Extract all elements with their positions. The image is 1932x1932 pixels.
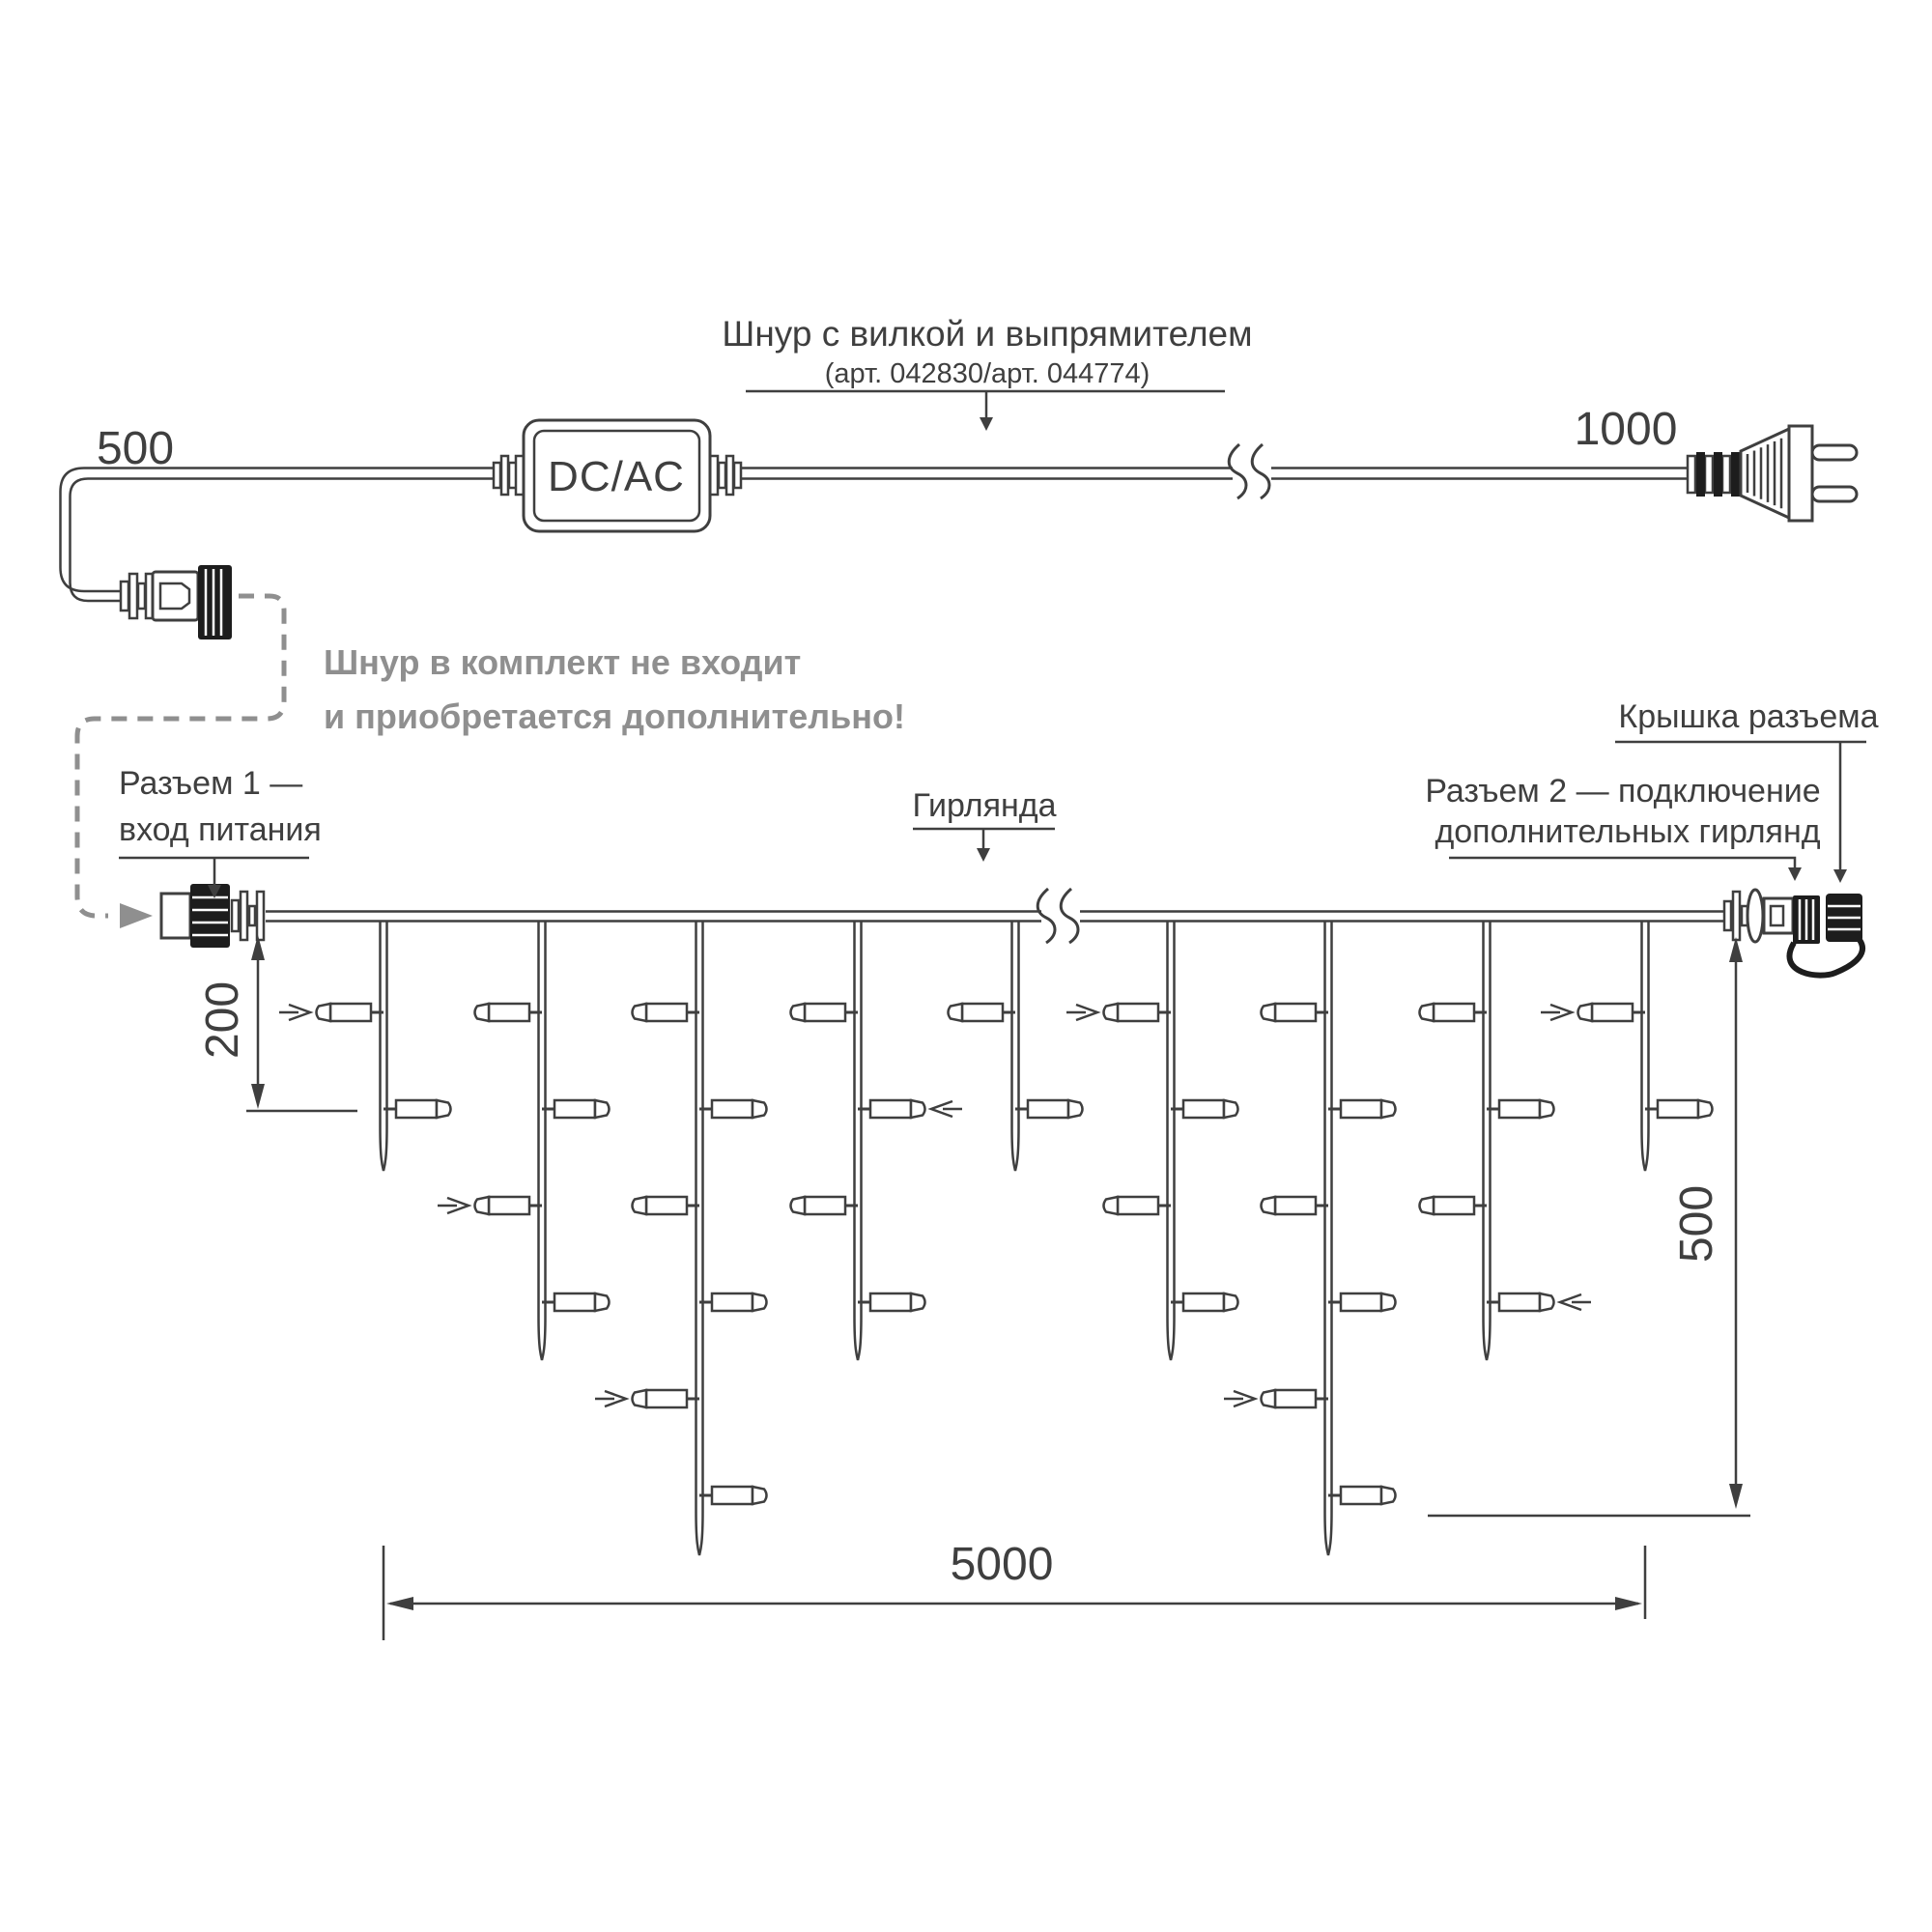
- bulb-cap: [753, 1487, 767, 1504]
- bulb-cap: [753, 1100, 767, 1118]
- connector2-ribs: [1724, 892, 1747, 940]
- bulb-cap: [1262, 1004, 1276, 1021]
- led-bulb: [1328, 1293, 1396, 1311]
- drop-wire: [1168, 921, 1175, 1360]
- power-cord-assembly: 500 1000 Шнур с вилкой и выпрямителем (а…: [61, 314, 1858, 639]
- note-line1: Шнур в комплект не входит: [324, 642, 801, 682]
- led-bulb: [1171, 1100, 1238, 1118]
- bulb-marker-arrow-icon: [1560, 1294, 1591, 1310]
- drop-wire: [1325, 921, 1332, 1555]
- bulb-body: [805, 1197, 845, 1214]
- led-bulb: [542, 1293, 610, 1311]
- bulb-body: [1341, 1293, 1381, 1311]
- bulb-cap: [911, 1293, 925, 1311]
- led-bulb: [791, 1197, 859, 1214]
- drop-wire: [696, 921, 703, 1555]
- bulb-cap: [791, 1004, 806, 1021]
- bulb-body: [1341, 1100, 1381, 1118]
- bulb-cap: [1068, 1100, 1083, 1118]
- bulb-body: [1275, 1390, 1316, 1407]
- bulb-marker-arrow-icon: [438, 1198, 469, 1213]
- led-bulb: [279, 1004, 384, 1021]
- cord-end-connector: [121, 565, 232, 639]
- cord-right-lines: [742, 469, 1689, 479]
- bulb-body: [1499, 1100, 1540, 1118]
- bulb-body: [1434, 1004, 1474, 1021]
- bulb-cap: [949, 1004, 963, 1021]
- bulb-body: [805, 1004, 845, 1021]
- garland-drop: [1224, 921, 1396, 1555]
- connector2-callout: Разъем 2 — подключение дополнительных ги…: [1425, 773, 1820, 881]
- bulb-cap: [1104, 1197, 1119, 1214]
- connector1-plug-body: [161, 894, 190, 938]
- dim5000-arrow-left-icon: [386, 1597, 413, 1610]
- plug-pin-bottom: [1812, 487, 1857, 501]
- bulb-body: [1275, 1197, 1316, 1214]
- led-bulb: [1420, 1004, 1488, 1021]
- led-bulb: [438, 1197, 542, 1214]
- bulb-marker-arrow-icon: [595, 1391, 626, 1406]
- connector2-label-line1: Разъем 2 — подключение: [1425, 773, 1820, 810]
- bulb-body: [870, 1293, 911, 1311]
- connector1-callout: Разъем 1 — вход питания: [119, 765, 322, 898]
- dashed-connection-path: [77, 596, 284, 916]
- cord-right-length-label: 1000: [1575, 404, 1678, 455]
- bulb-body: [712, 1487, 753, 1504]
- bulb-body: [712, 1293, 753, 1311]
- led-bulb: [1487, 1100, 1554, 1118]
- drop-wire: [1484, 921, 1491, 1360]
- bulb-cap: [633, 1390, 647, 1407]
- led-bulb: [1645, 1100, 1713, 1118]
- led-bulb: [475, 1004, 543, 1021]
- plug-strain-relief-dark: [1696, 452, 1740, 497]
- garland-callout: Гирлянда: [912, 787, 1056, 862]
- cap-arrow-icon: [1833, 869, 1847, 883]
- dim5000-value: 5000: [951, 1539, 1054, 1590]
- garland-drop: [595, 921, 767, 1555]
- drop-wire: [539, 921, 546, 1360]
- wire-break-icon: [1061, 889, 1078, 943]
- bulb-marker-arrow-icon: [1224, 1391, 1255, 1406]
- bulb-cap: [1420, 1004, 1435, 1021]
- drop-wire: [1642, 921, 1649, 1171]
- bulb-body: [396, 1100, 437, 1118]
- cord-subtitle: (арт. 042830/арт. 044774): [825, 358, 1151, 389]
- bulb-cap: [1540, 1100, 1554, 1118]
- led-bulb: [858, 1293, 925, 1311]
- cord-left-length-label: 500: [97, 423, 174, 474]
- connector2-label-line2: дополнительных гирлянд: [1435, 813, 1820, 850]
- bulb-cap: [1262, 1197, 1276, 1214]
- mains-plug: [1688, 426, 1857, 521]
- led-bulb: [1171, 1293, 1238, 1311]
- cord-break-icon: [1252, 444, 1269, 498]
- converter-right-strain-relief: [710, 456, 741, 495]
- led-bulb: [1262, 1197, 1329, 1214]
- dim500-value: 500: [1671, 1185, 1722, 1263]
- led-bulb: [1420, 1197, 1488, 1214]
- cord-title-arrow-icon: [980, 417, 993, 431]
- connector2-leader-line: [1449, 858, 1795, 867]
- led-bulb: [699, 1293, 767, 1311]
- garland-drop: [1066, 921, 1238, 1360]
- wire-break-icon: [1037, 889, 1055, 943]
- bulb-body: [1434, 1197, 1474, 1214]
- connector1-leader-line: [119, 858, 309, 885]
- led-bulb: [1541, 1004, 1645, 1021]
- bulb-cap: [595, 1100, 610, 1118]
- led-bulb: [1328, 1100, 1396, 1118]
- bulb-cap: [475, 1197, 490, 1214]
- bulb-body: [1118, 1004, 1158, 1021]
- connector2-loop-icon: [1747, 890, 1763, 942]
- converter-left-strain-relief: [494, 456, 524, 495]
- cord-connection-hint: Шнур в комплект не входит и приобретаетс…: [77, 596, 905, 928]
- bulb-body: [489, 1197, 529, 1214]
- plug-face-plate: [1789, 426, 1812, 521]
- bulb-body: [1592, 1004, 1633, 1021]
- bulb-cap: [1224, 1293, 1238, 1311]
- bulb-cap: [633, 1197, 647, 1214]
- garland-drops: [279, 921, 1713, 1555]
- dim5000-arrow-right-icon: [1615, 1597, 1642, 1610]
- plug-pin-top: [1812, 445, 1857, 460]
- bulb-body: [489, 1004, 529, 1021]
- bulb-body: [646, 1004, 687, 1021]
- garland-drop: [949, 921, 1083, 1171]
- led-bulb: [1328, 1487, 1396, 1504]
- cap-label: Крышка разъема: [1618, 698, 1878, 735]
- cord-title: Шнур с вилкой и выпрямителем: [722, 314, 1252, 354]
- diagram-page: 500 1000 Шнур с вилкой и выпрямителем (а…: [0, 0, 1932, 1932]
- bulb-body: [712, 1100, 753, 1118]
- bulb-cap: [753, 1293, 767, 1311]
- bulb-cap: [1104, 1004, 1119, 1021]
- bulb-cap: [791, 1197, 806, 1214]
- garland-drop: [1420, 921, 1592, 1360]
- garland-connector2: [1724, 890, 1862, 976]
- bulb-body: [870, 1100, 911, 1118]
- drop-wire: [1012, 921, 1019, 1171]
- led-bulb: [1262, 1004, 1329, 1021]
- bulb-cap: [1262, 1390, 1276, 1407]
- bulb-cap: [911, 1100, 925, 1118]
- led-bulb: [949, 1004, 1016, 1021]
- bulb-cap: [437, 1100, 451, 1118]
- led-bulb: [1066, 1004, 1171, 1021]
- bulb-marker-arrow-icon: [1541, 1005, 1572, 1020]
- bulb-cap: [633, 1004, 647, 1021]
- dimension-5000: 5000: [384, 1539, 1645, 1640]
- bulb-marker-arrow-icon: [931, 1101, 962, 1117]
- bulb-cap: [1578, 1004, 1593, 1021]
- gray-arrow-icon: [120, 903, 153, 928]
- dimension-200: 200: [197, 935, 357, 1111]
- bulb-body: [330, 1004, 371, 1021]
- plug-strain-relief-light: [1688, 456, 1730, 493]
- connector1-nut: [190, 884, 230, 948]
- led-bulb: [633, 1004, 700, 1021]
- bulb-cap: [595, 1293, 610, 1311]
- led-bulb: [595, 1390, 699, 1407]
- bulb-marker-arrow-icon: [1066, 1005, 1097, 1020]
- connector1-ribs: [232, 892, 264, 940]
- bulb-cap: [1420, 1197, 1435, 1214]
- garland-drop: [279, 921, 451, 1171]
- bulb-body: [1658, 1100, 1698, 1118]
- garland-wire: [266, 912, 1725, 922]
- garland-diagram: 500 1000 Шнур с вилкой и выпрямителем (а…: [0, 0, 1932, 1932]
- led-bulb: [699, 1487, 767, 1504]
- drop-wire: [855, 921, 862, 1360]
- bulb-cap: [1698, 1100, 1713, 1118]
- bulb-cap: [1224, 1100, 1238, 1118]
- garland-drop: [791, 921, 963, 1360]
- bulb-cap: [317, 1004, 331, 1021]
- connector2-arrow-icon: [1788, 867, 1802, 881]
- bulb-body: [1183, 1100, 1224, 1118]
- bulb-body: [962, 1004, 1003, 1021]
- bulb-cap: [1381, 1293, 1396, 1311]
- led-bulb: [1104, 1197, 1172, 1214]
- led-bulb: [791, 1004, 859, 1021]
- cord-break-icon: [1229, 444, 1246, 498]
- bulb-body: [1499, 1293, 1540, 1311]
- bulb-cap: [1540, 1293, 1554, 1311]
- dim500-arrow-down-icon: [1729, 1484, 1743, 1509]
- bulb-cap: [1381, 1100, 1396, 1118]
- bulb-body: [1028, 1100, 1068, 1118]
- drop-wire: [381, 921, 387, 1171]
- led-bulb: [699, 1100, 767, 1118]
- bulb-body: [646, 1390, 687, 1407]
- garland-arrow-icon: [977, 848, 990, 862]
- garland-drop: [438, 921, 610, 1360]
- led-bulb: [1015, 1100, 1083, 1118]
- garland-assembly: [161, 884, 1862, 1555]
- cap-strap: [1789, 940, 1862, 976]
- garland-leader-line: [913, 829, 1055, 848]
- garland-label: Гирлянда: [912, 787, 1056, 824]
- bulb-cap: [1381, 1487, 1396, 1504]
- led-bulb: [384, 1100, 451, 1118]
- bulb-body: [646, 1197, 687, 1214]
- note-line2: и приобретается дополнительно!: [324, 696, 905, 736]
- connector2-body: [1764, 898, 1793, 933]
- dim200-arrow-down-icon: [251, 1084, 265, 1109]
- converter-label: DC/AC: [548, 453, 685, 500]
- connector1-label-line1: Разъем 1 —: [119, 765, 302, 802]
- dimension-500: 500: [1428, 937, 1750, 1516]
- bulb-body: [1118, 1197, 1158, 1214]
- bulb-cap: [475, 1004, 490, 1021]
- bulb-body: [554, 1293, 595, 1311]
- bulb-body: [1183, 1293, 1224, 1311]
- dc-ac-converter: DC/AC: [494, 420, 741, 531]
- bulb-marker-arrow-icon: [279, 1005, 310, 1020]
- bulb-body: [1341, 1487, 1381, 1504]
- cord-end-connector-ribs: [121, 574, 153, 618]
- dim200-value: 200: [197, 981, 248, 1059]
- led-bulb: [1224, 1390, 1328, 1407]
- cord-end-connector-nut: [198, 565, 232, 639]
- led-bulb: [542, 1100, 610, 1118]
- dimensions: 200 500 5000: [197, 935, 1750, 1640]
- led-bulb: [633, 1197, 700, 1214]
- connector1-label-line2: вход питания: [119, 811, 322, 848]
- led-bulb: [858, 1100, 962, 1118]
- bulb-body: [554, 1100, 595, 1118]
- garland-drop: [1541, 921, 1713, 1171]
- cord-left-outer-line: [61, 469, 497, 592]
- led-bulb: [1487, 1293, 1591, 1311]
- bulb-body: [1275, 1004, 1316, 1021]
